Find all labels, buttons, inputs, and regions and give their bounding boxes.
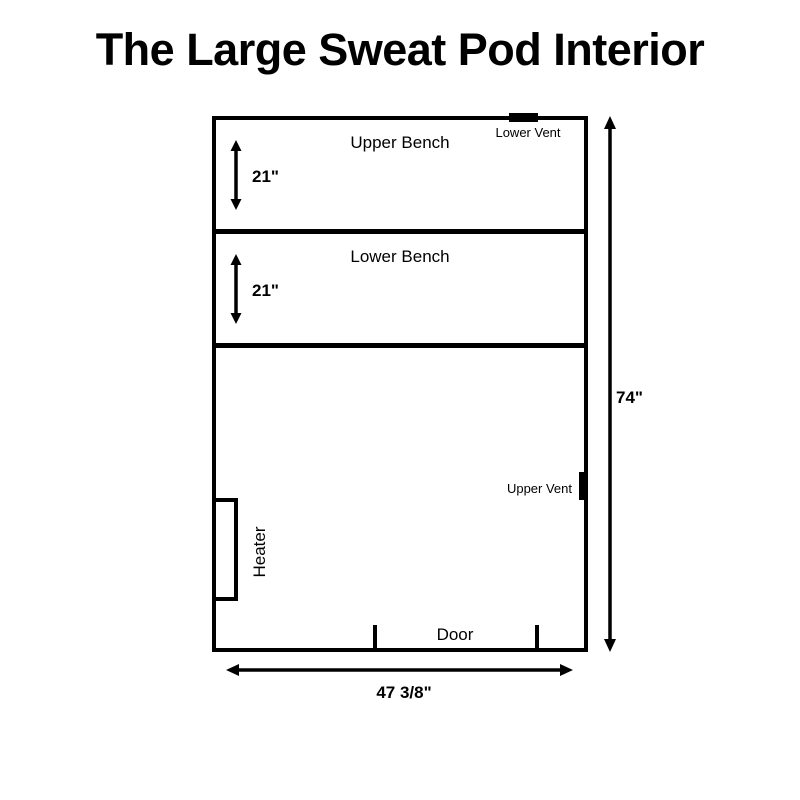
lower-bench-depth-arrow-icon bbox=[227, 254, 245, 324]
pod-height-arrow-icon bbox=[601, 116, 619, 652]
door-opening-tick-right bbox=[535, 625, 539, 652]
pod-width-label: 47 3/8" bbox=[344, 683, 464, 703]
lower-bench-depth-label: 21" bbox=[252, 281, 279, 301]
upper-bench-divider bbox=[213, 229, 587, 234]
upper-vent-marker bbox=[579, 472, 588, 500]
heater-box bbox=[216, 498, 238, 601]
lower-vent-label: Lower Vent bbox=[478, 125, 578, 140]
upper-bench-label: Upper Bench bbox=[300, 133, 500, 153]
pod-height-label: 74" bbox=[616, 388, 643, 408]
lower-bench-divider bbox=[213, 343, 587, 348]
page-title: The Large Sweat Pod Interior bbox=[0, 24, 800, 76]
pod-width-arrow-icon bbox=[226, 661, 573, 679]
upper-vent-label: Upper Vent bbox=[490, 481, 572, 496]
heater-label: Heater bbox=[250, 526, 270, 577]
diagram-canvas: The Large Sweat Pod Interior Upper Bench… bbox=[0, 0, 800, 800]
upper-bench-depth-arrow-icon bbox=[227, 140, 245, 210]
upper-bench-depth-label: 21" bbox=[252, 167, 279, 187]
door-opening-tick-left bbox=[373, 625, 377, 652]
door-label: Door bbox=[415, 625, 495, 645]
lower-vent-marker bbox=[509, 113, 538, 122]
lower-bench-label: Lower Bench bbox=[300, 247, 500, 267]
